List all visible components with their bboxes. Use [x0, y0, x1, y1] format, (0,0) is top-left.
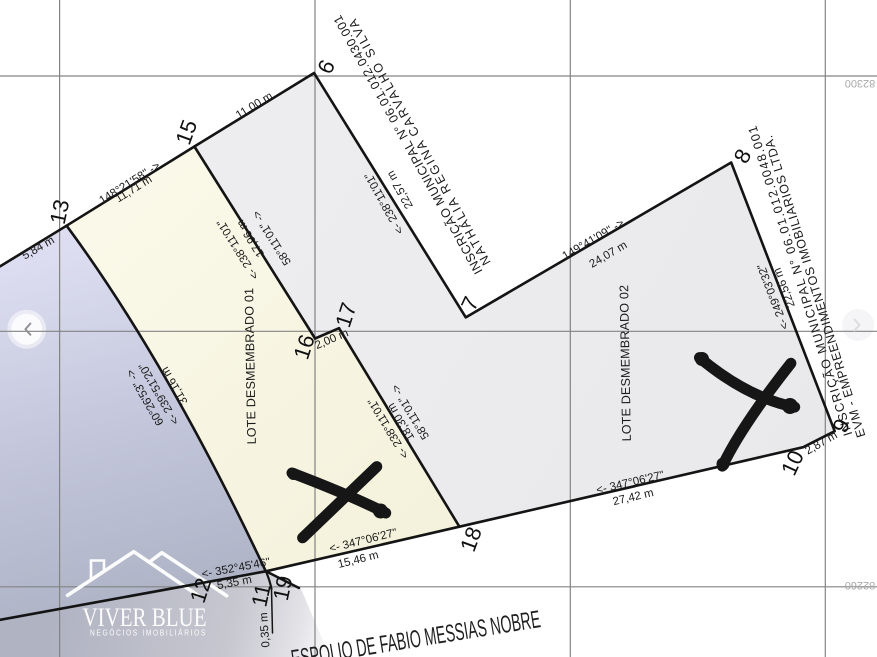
svg-text:13: 13 [45, 197, 75, 226]
svg-text:0,35 m: 0,35 m [258, 612, 272, 648]
svg-text:82260: 82260 [845, 579, 876, 591]
svg-text:NEGÓCIOS IMOBILIÁRIOS: NEGÓCIOS IMOBILIÁRIOS [90, 629, 207, 638]
svg-text:LOTE DESMEMBRADO 01: LOTE DESMEMBRADO 01 [242, 288, 259, 445]
svg-text:LOTE DESMEMBRADO 02: LOTE DESMEMBRADO 02 [617, 285, 634, 442]
svg-text:82300: 82300 [845, 77, 876, 89]
